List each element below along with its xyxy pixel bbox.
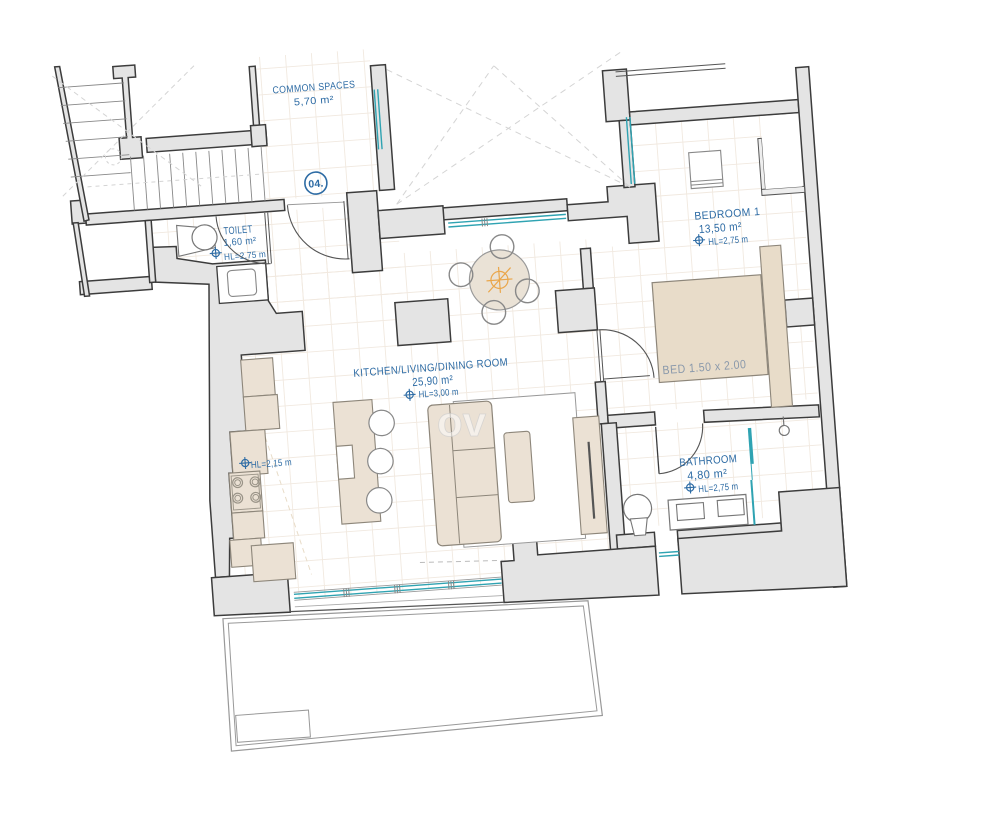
svg-text:ov: ov xyxy=(437,398,487,445)
svg-text:04.: 04. xyxy=(308,178,324,191)
